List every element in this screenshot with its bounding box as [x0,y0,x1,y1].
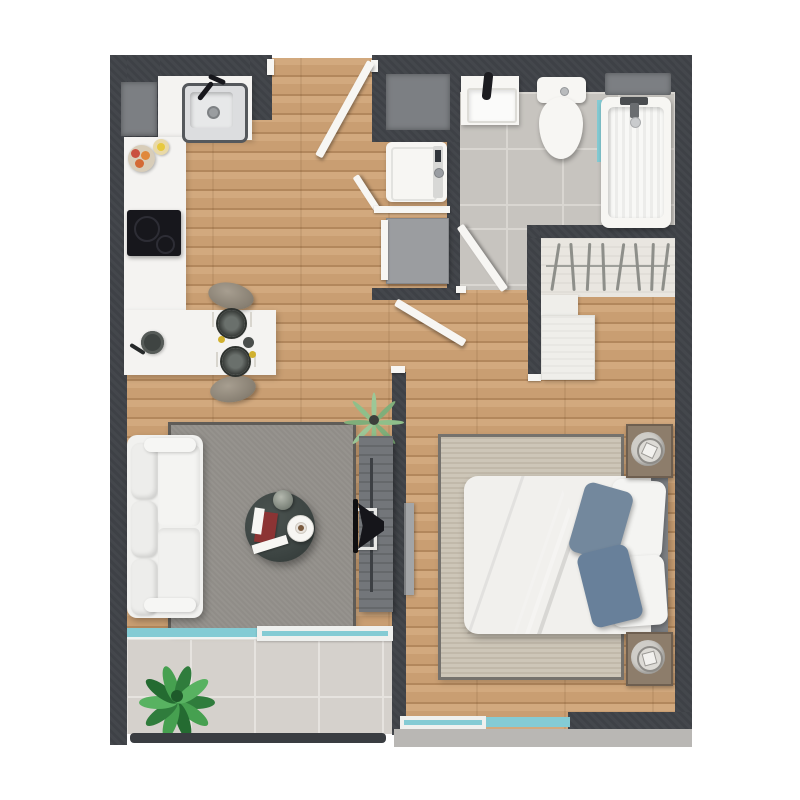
fruit-orange [141,151,150,160]
wall-right [675,55,692,735]
washer-lid [391,147,437,201]
dryer-door-bar [381,220,388,280]
bathtub [601,97,671,228]
sofa-back-cushion-2 [131,501,157,557]
side-table [287,515,314,542]
kitchen-wall-niche [121,82,157,136]
burner-large [134,216,160,242]
table-vase [273,490,293,510]
window-ledge [394,729,692,747]
washing-machine [386,142,447,202]
sliding-door-panel [404,503,414,595]
cutlery-3 [216,352,218,367]
bedroom-window-frame [400,716,486,730]
bathroom-door-cap [456,286,466,293]
washer-knob [434,168,444,178]
toilet [537,77,586,159]
floor-plan [0,0,800,800]
hanger-icon [650,243,655,291]
toilet-button [560,87,569,96]
closet-dresser [541,315,595,380]
toilet-bowl [539,97,583,159]
laundry-door-track [374,206,450,213]
lemon-dot-2 [249,351,256,358]
lemon-plate [153,139,169,155]
nightstand-bottom [626,632,673,686]
vanity [461,76,519,125]
balcony-railing [130,733,386,743]
hanger-icon [586,243,592,291]
hanger-icon [601,243,606,291]
hanger-icon [634,243,641,291]
lemon [157,143,165,151]
fruit-tomato [135,159,144,168]
balcony-glass-door-right-frame [257,626,393,641]
cutlery-1 [212,312,214,327]
bedroom-window-glass-line [404,720,482,725]
sofa-seat-cushion-1 [158,445,200,526]
dryer [386,218,449,284]
fruit-red [131,149,140,158]
place-setting-1 [218,310,245,337]
closet-dresser-step [541,295,578,317]
tv-screen-edge [353,499,358,553]
coffee-cup [295,522,307,534]
nightstand-top [626,424,673,478]
wall-closet-left [528,238,541,380]
vanity-basin [467,88,517,123]
pan [141,331,164,354]
sink-drain [207,106,220,119]
duvet-fold-1 [524,474,584,638]
closet-hangers [546,238,670,296]
fruit-bowl [128,145,155,172]
sofa-bolster-top [144,438,196,452]
hanger-icon [569,243,575,291]
burner-small [156,235,175,254]
condiment-bowl [243,337,254,348]
tub-faucet-stem [630,103,639,118]
duvet-fold-4 [466,474,525,638]
place-setting-2 [222,348,249,375]
kitchen-sink [182,83,248,143]
wall-laundry-bottom [372,288,460,300]
closet-wall-cap [528,374,541,381]
sofa-bolster-bottom [144,598,196,612]
hanger-icon [661,243,670,291]
washer-display [435,150,441,162]
plant-pot [369,415,379,425]
hanger-icon [550,243,560,291]
bathtub-window [605,73,671,95]
induction-cooktop [127,210,181,256]
hanger-icon [616,243,626,291]
sofa-seat-cushion-2 [158,528,200,608]
entry-frame-cap-left [267,59,274,75]
coffee [298,525,304,531]
lemon-dot-1 [218,336,225,343]
balcony-glass-door-left [127,628,257,639]
washer-control-panel [433,146,443,198]
partition-top-cap [391,366,405,373]
tub-drain [630,117,641,128]
balcony-glass-line [262,631,388,636]
duvet-fold-2 [512,474,571,638]
hall-utility-niche [386,74,450,130]
bedroom-window-glass [486,717,570,727]
bed [464,476,668,634]
sofa [127,435,203,618]
plant-center [171,690,183,702]
cutlery-2 [250,312,252,327]
